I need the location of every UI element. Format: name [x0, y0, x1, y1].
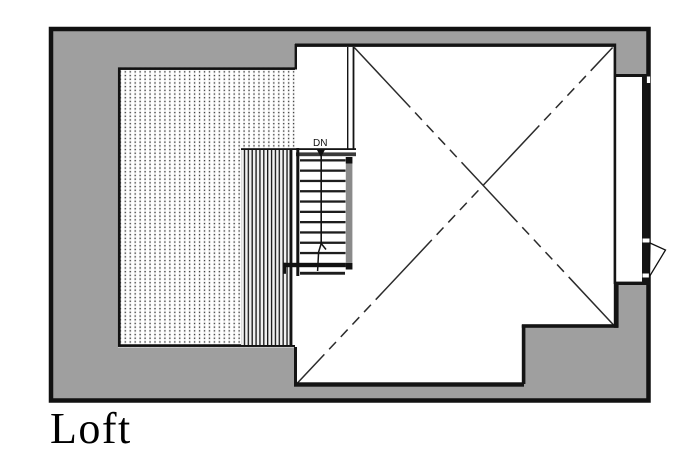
svg-text:DN: DN [313, 138, 327, 149]
svg-text:Loft: Loft [50, 404, 132, 453]
